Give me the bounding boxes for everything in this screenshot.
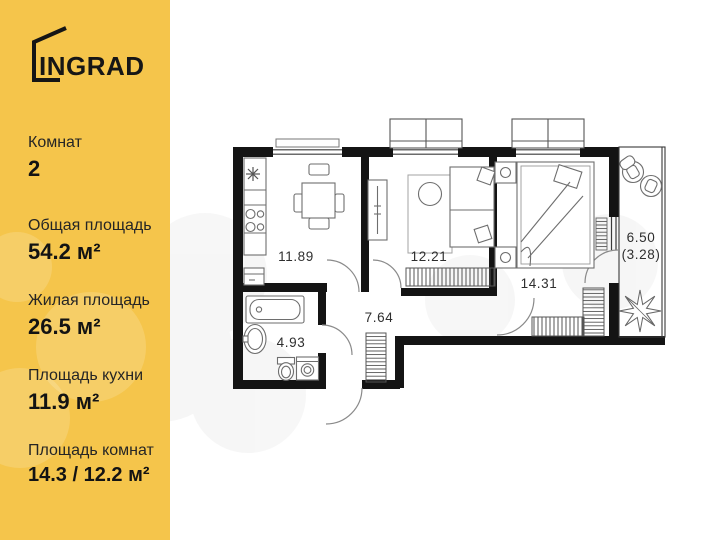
stat-total-area: Общая площадь 54.2 м² [28, 216, 152, 265]
stat-label: Общая площадь [28, 216, 152, 235]
nightstand [495, 162, 516, 183]
double-bed [517, 162, 594, 268]
kitchen-window-sill [276, 139, 339, 147]
sink-icon [246, 167, 260, 181]
kitchen-door-arc [327, 260, 359, 292]
balcony-window-radiator [596, 218, 607, 250]
round-table [419, 183, 442, 206]
bedroom1-door-arc [373, 260, 401, 288]
bedroom1-area-label: 12.21 [411, 249, 448, 264]
kitchen-area-label: 11.89 [278, 249, 314, 264]
dining-table [294, 164, 344, 229]
bedroom2-radiator [532, 317, 584, 336]
window-bay-bedroom1 [390, 119, 462, 148]
info-sidebar: INGRAD Комнат 2 Общая площадь 54.2 м² Жи… [0, 0, 170, 540]
bedroom2-wardrobe [583, 288, 604, 336]
balcony-area-label: 6.50 [627, 230, 656, 245]
balcony-area-secondary-label: (3.28) [622, 247, 661, 262]
nightstand [495, 247, 516, 268]
bathroom-door-arc [322, 325, 352, 355]
ingrad-logo: INGRAD [26, 24, 161, 91]
stat-kitchen-area: Площадь кухни 11.9 м² [28, 366, 143, 415]
bathtub [246, 296, 304, 323]
armchair [618, 154, 643, 182]
stat-rooms: Комнат 2 [28, 133, 82, 182]
stat-value: 2 [28, 156, 82, 182]
bedroom1-radiator [406, 268, 495, 286]
hallway-area-label: 7.64 [365, 310, 394, 325]
stat-value: 11.9 м² [28, 389, 143, 415]
kitchen-cabinet [244, 268, 264, 285]
hallway-wardrobe [366, 333, 386, 382]
bedroom1-furniture [368, 167, 495, 286]
stat-label: Площадь комнат [28, 441, 154, 460]
stat-value: 54.2 м² [28, 239, 152, 265]
washing-machine [297, 357, 319, 380]
stat-label: Площадь кухни [28, 366, 143, 385]
stat-rooms-area: Площадь комнат 14.3 / 12.2 м² [28, 441, 154, 487]
sofa-bed [450, 167, 495, 247]
listing-image: 11.89 12.21 14.31 7.64 4.93 6.50 (3.28) … [0, 0, 720, 540]
armchair [641, 176, 662, 197]
bathroom-area-label: 4.93 [277, 335, 306, 350]
stat-living-area: Жилая площадь 26.5 м² [28, 291, 150, 340]
entrance-door-arc [326, 388, 362, 424]
window-bay-bedroom2 [512, 119, 584, 148]
toilet [278, 358, 295, 381]
stat-label: Жилая площадь [28, 291, 150, 310]
logo-text: INGRAD [39, 51, 145, 81]
bedroom2-area-label: 14.31 [521, 276, 558, 291]
stat-value: 26.5 м² [28, 314, 150, 340]
plant-icon [619, 290, 661, 332]
stat-value: 14.3 / 12.2 м² [28, 464, 154, 487]
stat-label: Комнат [28, 133, 82, 152]
